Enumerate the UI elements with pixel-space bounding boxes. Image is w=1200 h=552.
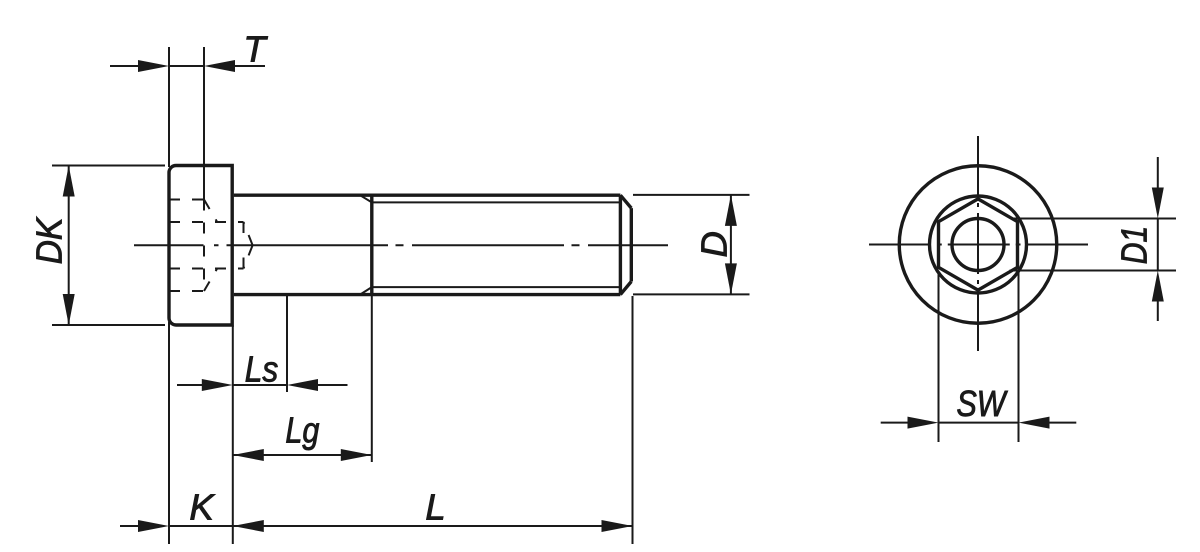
svg-text:T: T — [243, 29, 268, 70]
svg-text:Ls: Ls — [245, 349, 279, 390]
svg-text:D: D — [694, 231, 735, 257]
svg-text:Lg: Lg — [285, 410, 319, 451]
svg-text:K: K — [189, 487, 215, 528]
svg-text:DK: DK — [29, 216, 70, 264]
svg-text:L: L — [425, 487, 445, 528]
svg-text:SW: SW — [957, 383, 1009, 424]
svg-text:D1: D1 — [1114, 226, 1155, 265]
